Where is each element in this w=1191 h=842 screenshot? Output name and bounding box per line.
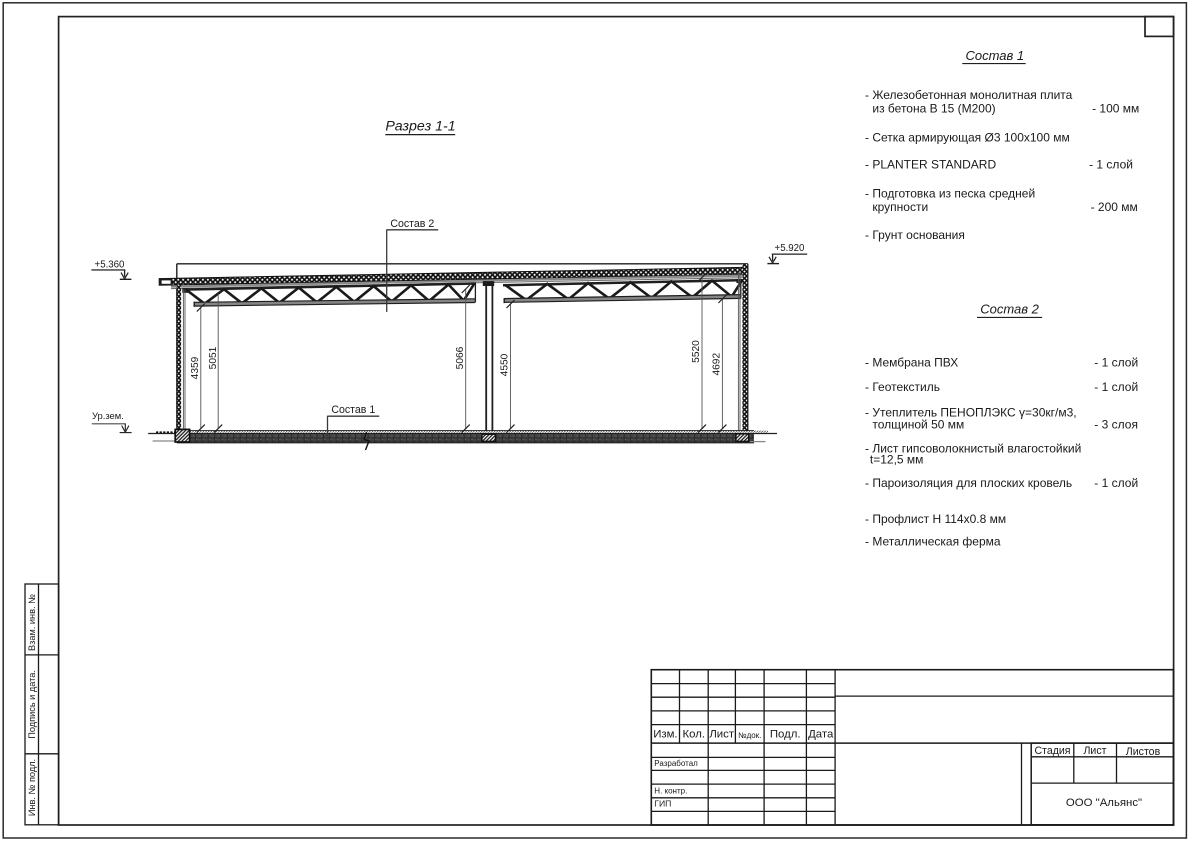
svg-text:- Сетка армирующая Ø3 100х100: - Сетка армирующая Ø3 100х100 мм (865, 131, 1070, 145)
svg-text:Состав 2: Состав 2 (980, 301, 1039, 316)
svg-text:5051: 5051 (208, 346, 219, 369)
svg-text:Лист: Лист (1083, 745, 1106, 757)
svg-text:- 1 слой: - 1 слой (1094, 380, 1138, 394)
svg-text:- Металлическая ферма: - Металлическая ферма (865, 534, 1001, 548)
svg-text:4359: 4359 (190, 356, 201, 379)
svg-text:- Подготовка из песка средней: - Подготовка из песка средней (865, 187, 1035, 201)
svg-text:крупности: крупности (872, 200, 928, 214)
svg-text:+5.920: +5.920 (775, 243, 806, 254)
svg-text:толщиной 50 мм: толщиной 50 мм (872, 418, 964, 432)
svg-text:4550: 4550 (500, 353, 511, 376)
svg-text:- Грунт основания: - Грунт основания (865, 228, 965, 242)
svg-text:Подпись и дата.: Подпись и дата. (27, 670, 37, 739)
svg-text:- Пароизоляция для плоских кро: - Пароизоляция для плоских кровель (865, 476, 1072, 490)
svg-text:ГИП: ГИП (654, 799, 671, 809)
svg-text:Состав 1: Состав 1 (965, 48, 1024, 63)
svg-text:Стадия: Стадия (1034, 745, 1070, 757)
svg-text:- Мембрана ПВХ: - Мембрана ПВХ (865, 356, 958, 370)
svg-text:- Профлист Н 114х0.8 мм: - Профлист Н 114х0.8 мм (865, 512, 1006, 526)
svg-text:5520: 5520 (691, 340, 702, 363)
svg-text:ООО "Альянс": ООО "Альянс" (1066, 797, 1142, 809)
svg-text:5066: 5066 (455, 346, 466, 369)
svg-text:из бетона В 15 (М200): из бетона В 15 (М200) (872, 101, 995, 115)
svg-text:Листов: Листов (1126, 746, 1161, 758)
svg-text:Взам. инв. №: Взам. инв. № (27, 594, 37, 651)
svg-text:Состав 1: Состав 1 (331, 404, 375, 416)
svg-text:Ур.зем.: Ур.зем. (92, 410, 124, 421)
svg-text:Лист: Лист (709, 728, 735, 740)
svg-text:4692: 4692 (712, 353, 723, 376)
svg-text:+5.360: +5.360 (95, 260, 126, 271)
svg-text:t=12,5 мм: t=12,5 мм (870, 452, 924, 466)
svg-text:- 1 слой: - 1 слой (1094, 356, 1138, 370)
svg-text:- PLANTER STANDARD: - PLANTER STANDARD (865, 157, 996, 171)
svg-text:Состав 2: Состав 2 (390, 218, 434, 230)
svg-text:- 1 слой: - 1 слой (1094, 476, 1138, 490)
svg-text:Разработал: Разработал (654, 759, 698, 768)
svg-text:- Железобетонная монолитная п: - Железобетонная монолитная плита (865, 88, 1073, 102)
svg-text:Инв. № подл.: Инв. № подл. (27, 759, 37, 816)
svg-text:- 3 слоя: - 3 слоя (1094, 418, 1138, 432)
svg-text:- 100 мм: - 100 мм (1092, 101, 1139, 115)
svg-text:Н. контр.: Н. контр. (654, 786, 687, 795)
svg-text:№док.: №док. (738, 731, 761, 740)
svg-text:- Геотекстиль: - Геотекстиль (865, 380, 940, 394)
svg-text:- 1 слой: - 1 слой (1089, 157, 1133, 171)
svg-text:Разрез 1-1: Разрез 1-1 (385, 119, 455, 135)
svg-text:Подл.: Подл. (770, 728, 801, 740)
svg-text:Кол.: Кол. (683, 728, 706, 740)
svg-text:- 200 мм: - 200 мм (1091, 200, 1138, 214)
svg-text:Изм.: Изм. (653, 728, 677, 740)
svg-text:Дата: Дата (808, 728, 834, 740)
